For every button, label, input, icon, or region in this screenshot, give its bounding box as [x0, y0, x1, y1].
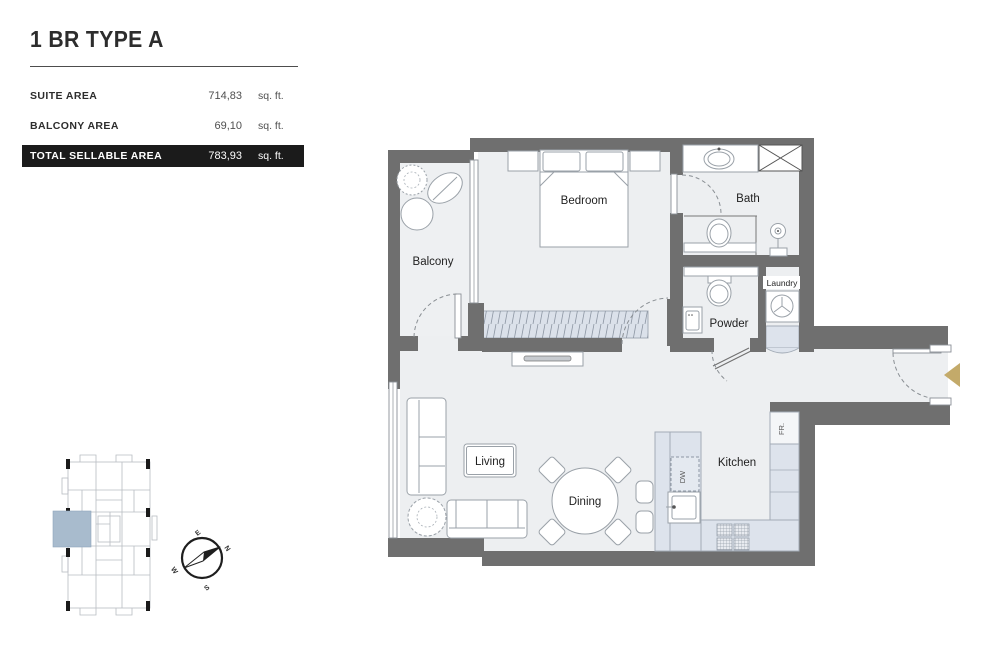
nightstand-left — [508, 151, 538, 171]
room-label-bath: Bath — [736, 193, 760, 205]
compass-icon: E N S W — [169, 529, 231, 593]
sofa-vertical — [407, 398, 446, 495]
bedroom-door-leaf — [667, 299, 673, 346]
dishwasher-label: DW — [678, 470, 687, 483]
keyplan — [53, 455, 157, 615]
bath-vanity — [683, 145, 758, 172]
room-label-dining: Dining — [569, 496, 602, 508]
bath-door-leaf — [671, 174, 677, 214]
entry-closet — [766, 326, 799, 353]
kitchen-sink — [666, 492, 700, 523]
powder-sink — [683, 307, 702, 333]
compass-n: N — [222, 545, 231, 553]
fridge-label: FR. — [777, 423, 786, 435]
living-plant — [408, 498, 446, 536]
compass-w: W — [169, 566, 179, 576]
sofa-horizontal — [447, 500, 527, 538]
room-label-bedroom: Bedroom — [561, 195, 608, 207]
room-label-kitchen: Kitchen — [718, 457, 756, 469]
room-label-laundry: Laundry — [767, 278, 798, 288]
compass-e: E — [194, 529, 202, 538]
wardrobe-hatch — [478, 311, 648, 338]
room-label-powder: Powder — [710, 318, 749, 330]
balcony-door-leaf — [455, 294, 461, 338]
nightstand-right — [630, 151, 660, 171]
tv-console — [512, 352, 583, 366]
floor-plan: Balcony Bedroom Bath Powder Laundry Livi… — [0, 0, 1000, 670]
keyplan-unit-highlight — [53, 511, 91, 547]
shaft-crossbox — [759, 145, 802, 171]
kitchen-island — [655, 432, 701, 551]
room-label-living: Living — [475, 456, 505, 468]
compass-s: S — [203, 584, 211, 593]
room-label-balcony: Balcony — [413, 256, 454, 268]
